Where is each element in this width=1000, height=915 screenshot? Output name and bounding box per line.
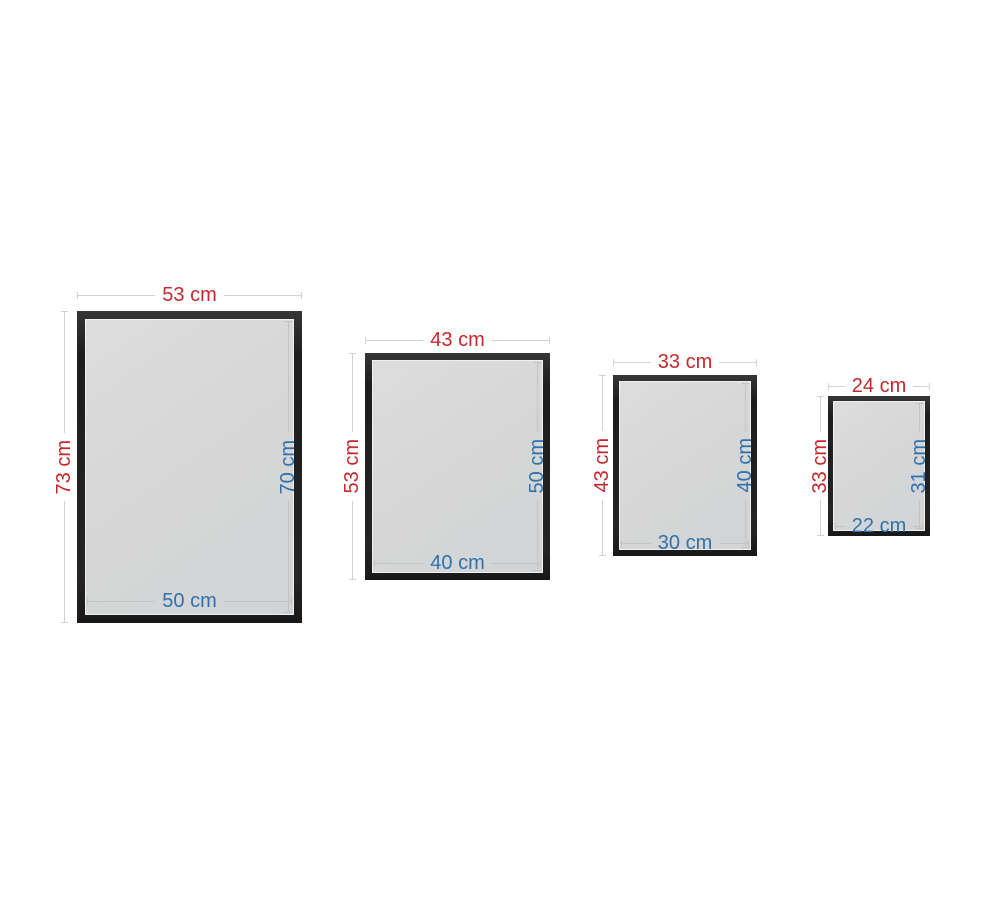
dimension-tick (756, 359, 757, 366)
dimension-line (537, 501, 538, 570)
inner-width-dimension: 50 cm (87, 590, 292, 612)
inner-height-label: 31 cm (908, 432, 930, 500)
inner-height-dimension: 31 cm (908, 403, 930, 529)
outer-width-dimension: 33 cm (613, 351, 757, 373)
dimension-line (366, 340, 423, 341)
dimension-tick (349, 579, 356, 580)
inner-width-label: 30 cm (651, 532, 719, 554)
dimension-line (829, 386, 845, 387)
outer-width-dimension: 53 cm (77, 284, 302, 306)
outer-height-dimension: 53 cm (341, 353, 363, 580)
frame-glass: 30 cm 40 cm (619, 381, 751, 550)
dimension-tick (285, 612, 292, 613)
outer-width-dimension: 43 cm (365, 329, 550, 351)
dimension-tick (534, 570, 541, 571)
outer-width-label: 53 cm (155, 284, 223, 306)
dimension-line (78, 295, 155, 296)
dimension-line (745, 500, 746, 547)
frame-size-diagram: 50 cm 70 cm 53 cm 73 cm (0, 0, 1000, 915)
dimension-line (745, 384, 746, 431)
picture-frame-43x53: 40 cm 50 cm 43 cm 53 cm (365, 353, 550, 580)
dimension-tick (817, 535, 824, 536)
dimension-tick (916, 528, 923, 529)
inner-height-dimension: 40 cm (734, 383, 756, 548)
inner-width-label: 22 cm (845, 515, 913, 537)
dimension-line (224, 295, 301, 296)
dimension-line (352, 354, 353, 432)
inner-width-dimension: 30 cm (621, 532, 749, 554)
dimension-tick (549, 337, 550, 344)
outer-height-label: 43 cm (591, 431, 613, 499)
frame-glass: 40 cm 50 cm (372, 360, 543, 573)
outer-height-label: 53 cm (341, 432, 363, 500)
inner-width-label: 40 cm (423, 552, 491, 574)
outer-width-label: 24 cm (845, 375, 913, 397)
frame-glass: 22 cm 31 cm (833, 401, 925, 531)
dimension-line (492, 340, 549, 341)
outer-width-label: 43 cm (423, 329, 491, 351)
outer-height-dimension: 73 cm (53, 311, 75, 623)
dimension-line (288, 322, 289, 433)
inner-height-label: 50 cm (526, 432, 548, 500)
dimension-line (622, 543, 651, 544)
dimension-line (919, 500, 920, 528)
inner-height-label: 40 cm (734, 431, 756, 499)
dimension-line (602, 500, 603, 555)
dimension-tick (929, 383, 930, 390)
inner-height-label: 70 cm (277, 433, 299, 501)
frame-glass: 50 cm 70 cm (85, 319, 294, 615)
dimension-line (88, 601, 155, 602)
dimension-line (64, 312, 65, 433)
dimension-tick (599, 555, 606, 556)
outer-height-dimension: 43 cm (591, 375, 613, 556)
inner-height-dimension: 70 cm (277, 321, 299, 613)
dimension-line (836, 526, 845, 527)
dimension-line (919, 404, 920, 432)
picture-frame-53x73: 50 cm 70 cm 53 cm 73 cm (77, 311, 302, 623)
dimension-line (820, 500, 821, 535)
outer-height-label: 73 cm (53, 433, 75, 501)
picture-frame-33x43: 30 cm 40 cm 33 cm 43 cm (613, 375, 757, 556)
dimension-line (820, 397, 821, 432)
dimension-line (375, 563, 423, 564)
dimension-tick (742, 547, 749, 548)
dimension-tick (301, 292, 302, 299)
outer-width-label: 33 cm (651, 351, 719, 373)
dimension-line (64, 501, 65, 622)
outer-height-label: 33 cm (809, 432, 831, 500)
dimension-line (719, 362, 756, 363)
picture-frame-24x33: 22 cm 31 cm 24 cm 33 cm (828, 396, 930, 536)
outer-width-dimension: 24 cm (828, 375, 930, 397)
dimension-tick (61, 622, 68, 623)
inner-height-dimension: 50 cm (526, 362, 548, 571)
dimension-line (614, 362, 651, 363)
outer-height-dimension: 33 cm (809, 396, 831, 536)
inner-width-label: 50 cm (155, 590, 223, 612)
dimension-line (352, 501, 353, 579)
dimension-line (602, 376, 603, 431)
dimension-line (913, 386, 929, 387)
dimension-line (537, 363, 538, 432)
inner-width-dimension: 40 cm (374, 552, 541, 574)
dimension-line (288, 501, 289, 612)
